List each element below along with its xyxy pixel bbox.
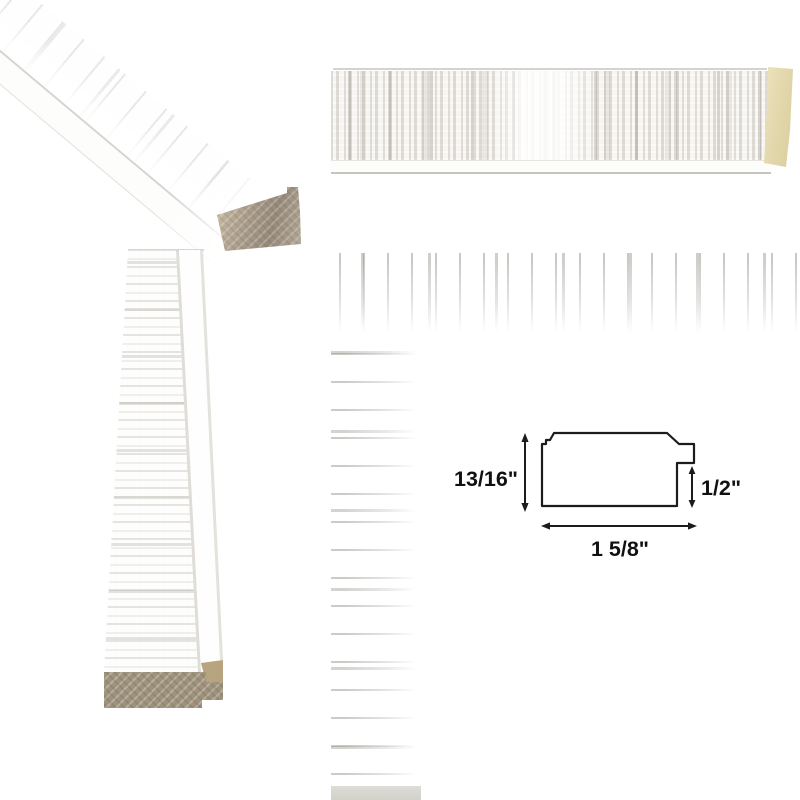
faint-horizontal-rail — [330, 253, 800, 339]
whitewashed-face-texture — [331, 71, 768, 160]
faint-vertical-rail — [331, 340, 420, 786]
profile-dimension-diagram: 13/16" 1/2" 1 5/8" — [430, 420, 760, 580]
photo-front-strip — [331, 62, 795, 175]
product-image-moulding-collage: 13/16" 1/2" 1 5/8" — [0, 0, 800, 800]
width-dimension-arrow — [541, 522, 697, 529]
faint-wood-end — [331, 786, 421, 800]
height-dimension-arrow — [521, 433, 528, 512]
photo-side-strip — [100, 248, 234, 710]
moulding-profile-outline — [542, 433, 694, 506]
width-dimension-label: 1 5/8" — [591, 537, 649, 561]
height-dimension-label: 13/16" — [454, 467, 518, 491]
smooth-lip-band — [331, 160, 771, 174]
rabbet-dimension-label: 1/2" — [701, 476, 741, 500]
strip-top-edge — [333, 68, 767, 70]
rabbet-dimension-arrow — [689, 466, 696, 508]
